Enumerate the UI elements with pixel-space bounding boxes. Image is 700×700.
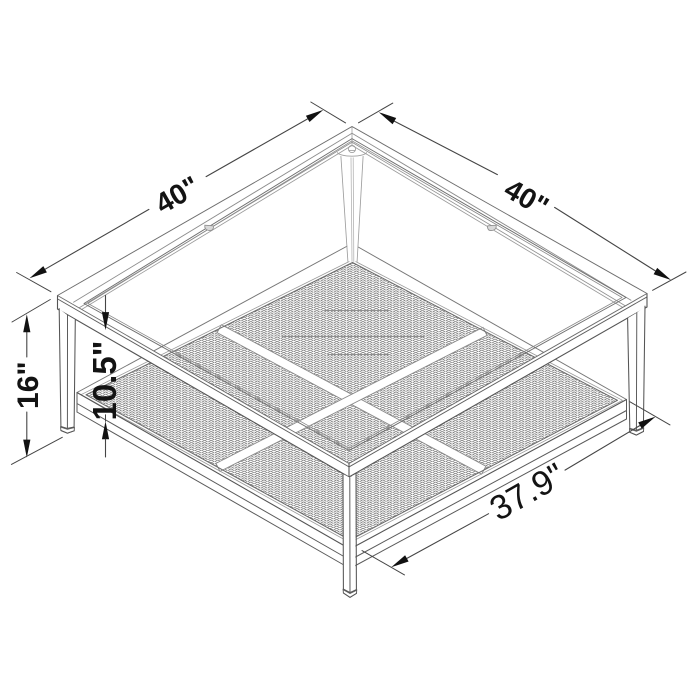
svg-text:10.5": 10.5"	[86, 341, 123, 421]
svg-text:16": 16"	[12, 361, 45, 409]
